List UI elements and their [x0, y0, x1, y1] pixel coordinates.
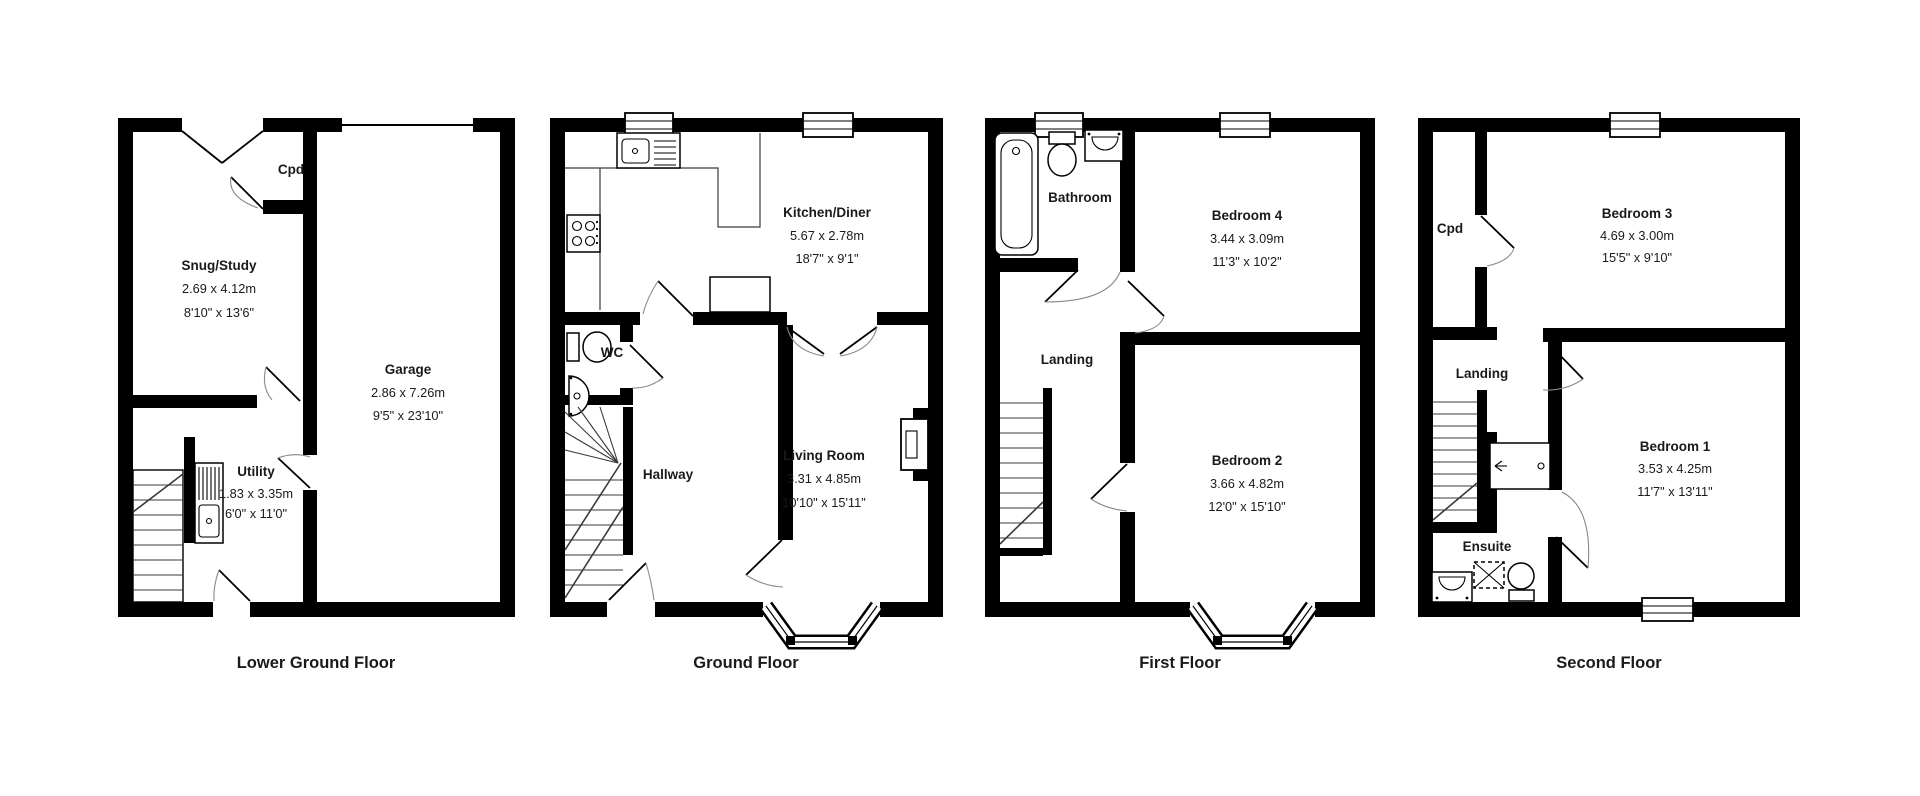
- room-label-bedroom-4: Bedroom 4: [1212, 208, 1283, 223]
- toilet-icon: [1508, 563, 1534, 589]
- doors: [1481, 216, 1589, 568]
- kitchen-fixtures: [565, 133, 770, 312]
- bathroom-sink-icon: [1085, 130, 1123, 161]
- utility-garage-door: [278, 458, 310, 488]
- room-dims-metric: 2.86 x 7.26m: [371, 385, 445, 400]
- room-dims-metric: 4.69 x 3.00m: [1600, 228, 1674, 243]
- bay-window: [1193, 606, 1312, 645]
- bedroom2-door: [1091, 464, 1127, 499]
- room-label-bedroom-1: Bedroom 1: [1640, 439, 1711, 454]
- floor-label-ground: Ground Floor: [693, 654, 799, 672]
- hob-icon: [567, 215, 600, 252]
- floor-plan-first: Bathroom Bedroom 4 3.44 x 3.09m 11'3" x …: [985, 113, 1375, 672]
- room-dims-metric: 2.69 x 4.12m: [182, 281, 256, 296]
- room-dims-metric: 5.67 x 2.78m: [790, 228, 864, 243]
- bay-window: [766, 606, 877, 645]
- room-label-wc: WC: [601, 345, 624, 360]
- room-label-bedroom-3: Bedroom 3: [1602, 206, 1673, 221]
- room-dims-imperial: 9'5" x 23'10": [373, 408, 443, 423]
- room-label-bathroom: Bathroom: [1048, 190, 1112, 205]
- room-dims-imperial: 6'0" x 11'0": [225, 506, 287, 521]
- floor-plan-second: Cpd Bedroom 3 4.69 x 3.00m 15'5" x 9'10"…: [1418, 113, 1800, 672]
- wc-door: [630, 345, 663, 378]
- front-door: [609, 563, 646, 600]
- ensuite-fixtures: [1432, 562, 1534, 602]
- room-label-cpd: Cpd: [278, 162, 304, 177]
- room-label-bedroom-2: Bedroom 2: [1212, 453, 1283, 468]
- room-label-snug-study: Snug/Study: [182, 258, 257, 273]
- room-label-hallway: Hallway: [643, 467, 694, 482]
- floor-plan-lower-ground: Cpd Snug/Study 2.69 x 4.12m 8'10" x 13'6…: [118, 118, 515, 672]
- room-label-kitchen-diner: Kitchen/Diner: [783, 205, 872, 220]
- cpd-door: [1481, 216, 1514, 248]
- room-dims-metric: 3.44 x 3.09m: [1210, 231, 1284, 246]
- fireplace-icon: [901, 408, 928, 481]
- room-label-garage: Garage: [385, 362, 432, 377]
- entrance-double-door-right: [222, 131, 263, 163]
- doors: [609, 281, 877, 600]
- room-label-ensuite: Ensuite: [1463, 539, 1512, 554]
- utility-sink-icon: [195, 463, 223, 543]
- kitchen-unit-icon: [710, 277, 770, 312]
- living-room-door: [746, 540, 782, 575]
- room-dims-imperial: 10'10" x 15'11": [782, 495, 865, 510]
- room-label-utility: Utility: [237, 464, 275, 479]
- room-dims-imperial: 11'7" x 13'11": [1637, 484, 1712, 499]
- room-label-landing: Landing: [1456, 366, 1509, 381]
- room-dims-imperial: 18'7" x 9'1": [795, 251, 858, 266]
- toilet-icon: [567, 333, 579, 361]
- room-dims-metric: 1.83 x 3.35m: [219, 486, 293, 501]
- room-dims-imperial: 11'3" x 10'2": [1212, 254, 1281, 269]
- floorplan-canvas: Cpd Snug/Study 2.69 x 4.12m 8'10" x 13'6…: [0, 0, 1920, 796]
- bedroom4-door: [1128, 281, 1164, 316]
- floor-label-second: Second Floor: [1556, 654, 1662, 672]
- room-label-cpd: Cpd: [1437, 221, 1463, 236]
- stairs-icon: [1000, 388, 1052, 556]
- floor-plan-ground: Kitchen/Diner 5.67 x 2.78m 18'7" x 9'1" …: [550, 113, 943, 672]
- windows: [1610, 113, 1693, 621]
- floor-label-lower-ground: Lower Ground Floor: [237, 654, 396, 672]
- room-label-landing: Landing: [1041, 352, 1094, 367]
- entrance-double-door-left: [182, 131, 222, 163]
- room-dims-imperial: 15'5" x 9'10": [1602, 250, 1672, 265]
- toilet-icon: [1049, 132, 1075, 144]
- room-dims-metric: 3.31 x 4.85m: [787, 471, 861, 486]
- wc-sink-icon: [569, 376, 589, 416]
- kitchen-door: [658, 281, 693, 316]
- room-labels: Bathroom Bedroom 4 3.44 x 3.09m 11'3" x …: [1041, 190, 1286, 514]
- snug-door: [266, 367, 300, 401]
- walls: [550, 118, 943, 617]
- stairs-icon: [1433, 402, 1477, 520]
- room-label-living-room: Living Room: [783, 448, 865, 463]
- bathroom-door: [1045, 270, 1078, 302]
- room-dims-metric: 3.66 x 4.82m: [1210, 476, 1284, 491]
- room-dims-metric: 3.53 x 4.25m: [1638, 461, 1712, 476]
- cpd-door: [231, 177, 263, 209]
- shower-icon: [1490, 443, 1550, 489]
- room-dims-imperial: 8'10" x 13'6": [184, 305, 254, 320]
- stairs-icon: [133, 470, 183, 602]
- room-dims-imperial: 12'0" x 15'10": [1208, 499, 1285, 514]
- stairs-icon: [565, 407, 623, 598]
- floor-label-first: First Floor: [1139, 654, 1221, 672]
- utility-rear-door: [219, 570, 250, 601]
- doors: [1045, 270, 1164, 511]
